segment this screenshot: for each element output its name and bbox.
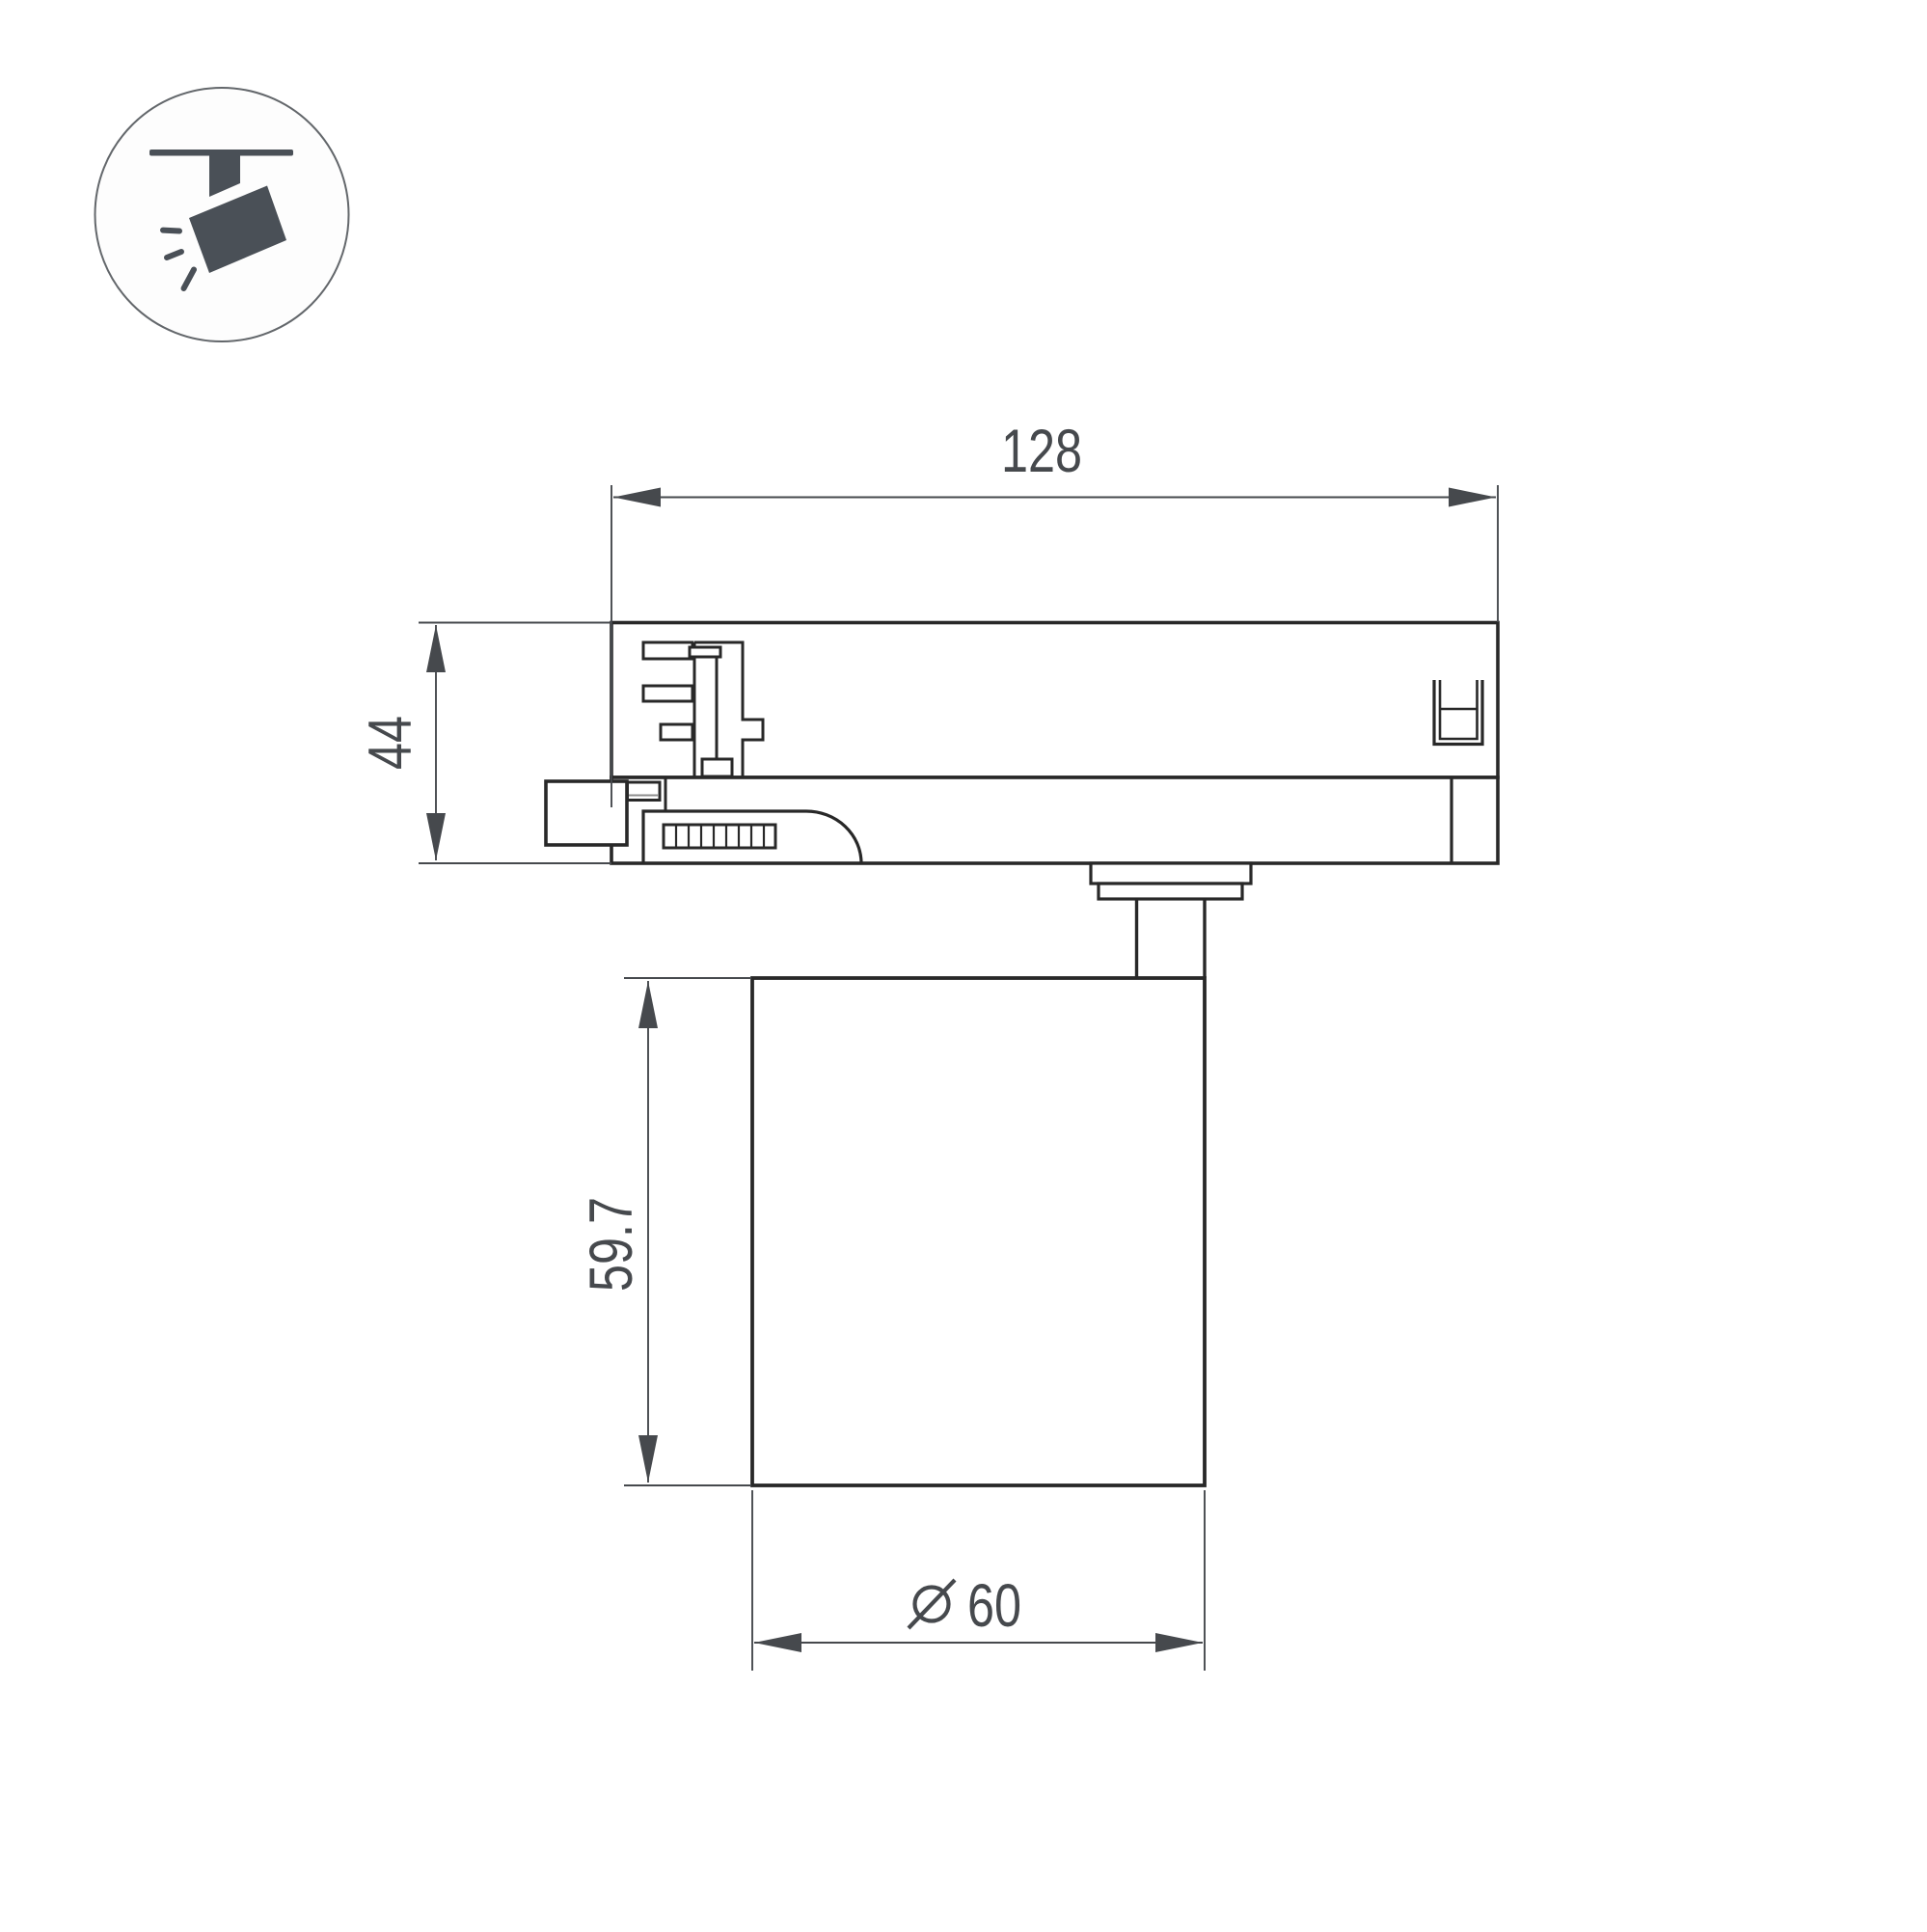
svg-text:128: 128 — [1001, 418, 1082, 486]
svg-text:44: 44 — [357, 716, 425, 770]
svg-text:60: 60 — [967, 1572, 1021, 1641]
svg-text:59.7: 59.7 — [578, 1197, 646, 1292]
